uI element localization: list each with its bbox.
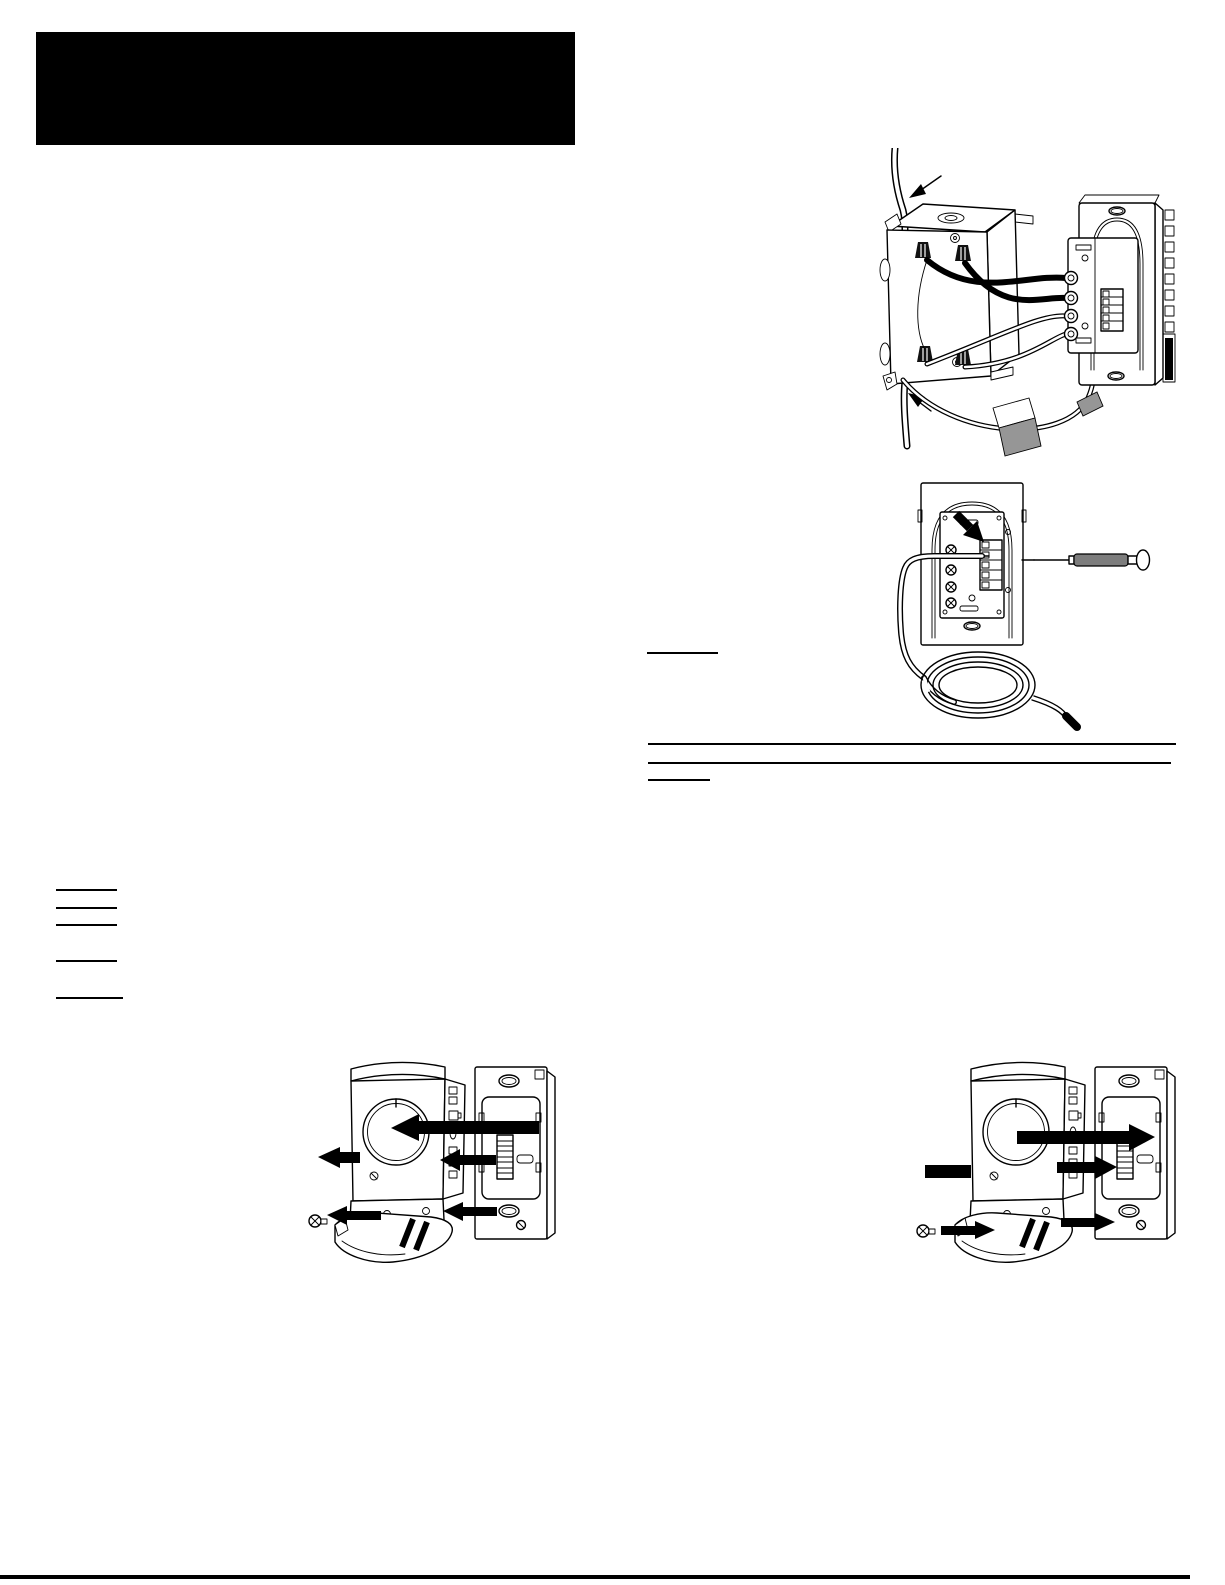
rule-right-column-top <box>648 743 1176 745</box>
figure-thermostat-removal <box>285 1035 585 1270</box>
screwdriver <box>1022 550 1150 570</box>
underline-left-column-2 <box>56 907 117 909</box>
mounting-screw <box>917 1225 935 1237</box>
underline-left-column-3 <box>56 924 117 926</box>
underline-left-column-5 <box>56 997 123 999</box>
terminal-module <box>1065 238 1139 353</box>
thermostat-power-base <box>1065 195 1176 385</box>
underline-right-column-b <box>648 779 710 781</box>
mounting-screw <box>309 1215 327 1227</box>
figure-thermostat-installation <box>905 1035 1205 1270</box>
figure-junction-box-wiring <box>845 148 1185 463</box>
rule-right-column-bottom <box>648 762 1171 764</box>
page <box>0 0 1225 1585</box>
coiled-cable <box>921 652 1077 727</box>
underline-right-column-a <box>647 652 718 654</box>
probe-tip <box>1066 716 1077 727</box>
underline-left-column-1 <box>56 889 117 891</box>
cable-pointer-arrow-top <box>909 176 941 198</box>
underline-left-column-4 <box>56 960 117 962</box>
heat-sink-fins <box>1165 210 1174 332</box>
rule-page-footer <box>0 1575 1190 1579</box>
figure-sensor-wire-terminal <box>872 470 1192 735</box>
